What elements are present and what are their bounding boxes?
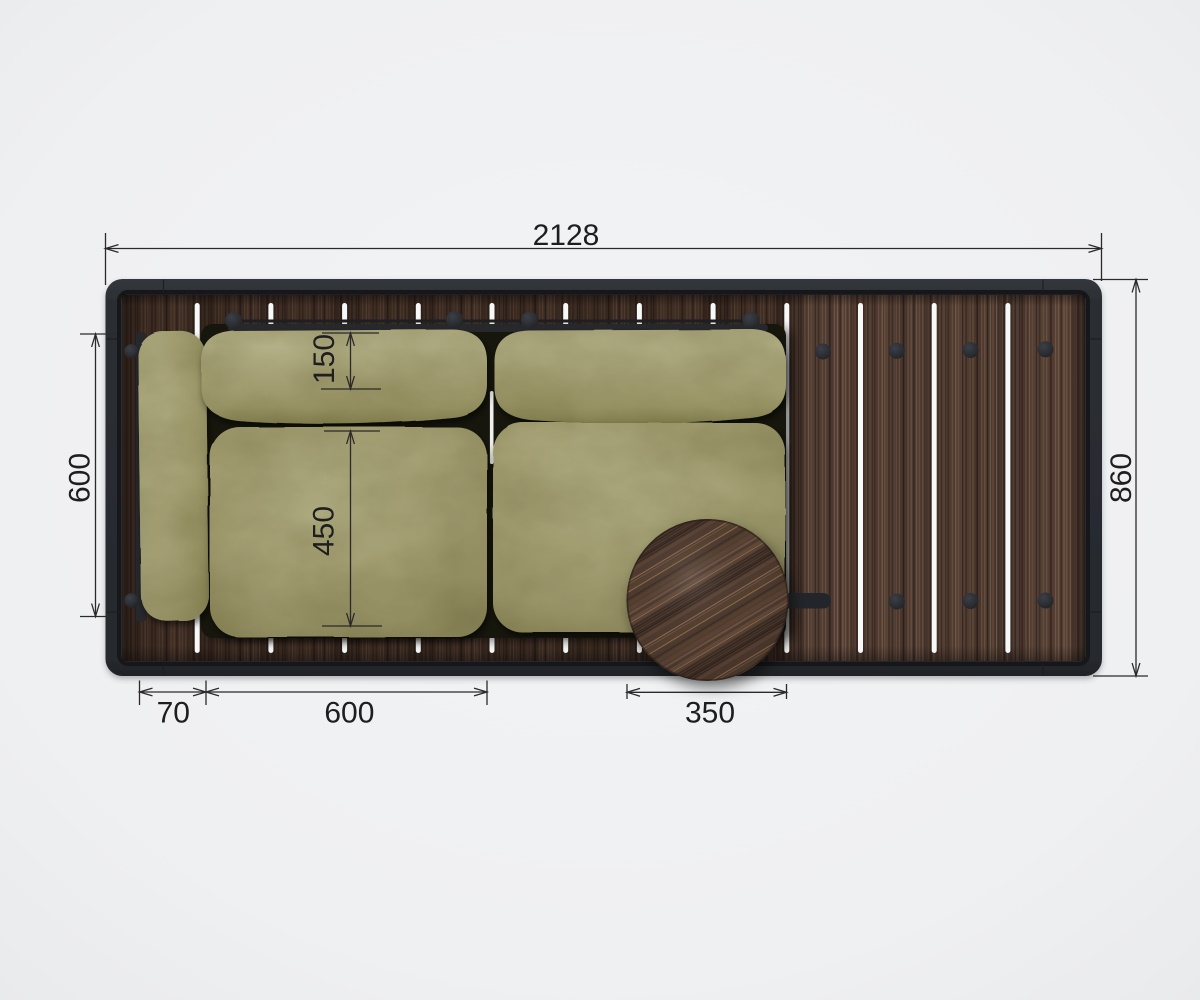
svg-text:450: 450 [308, 506, 341, 556]
svg-text:350: 350 [685, 697, 735, 730]
svg-text:860: 860 [1105, 453, 1138, 503]
svg-text:600: 600 [324, 697, 374, 730]
svg-text:150: 150 [308, 334, 341, 384]
svg-text:70: 70 [157, 697, 190, 730]
svg-text:2128: 2128 [533, 219, 600, 252]
svg-text:600: 600 [63, 453, 96, 503]
